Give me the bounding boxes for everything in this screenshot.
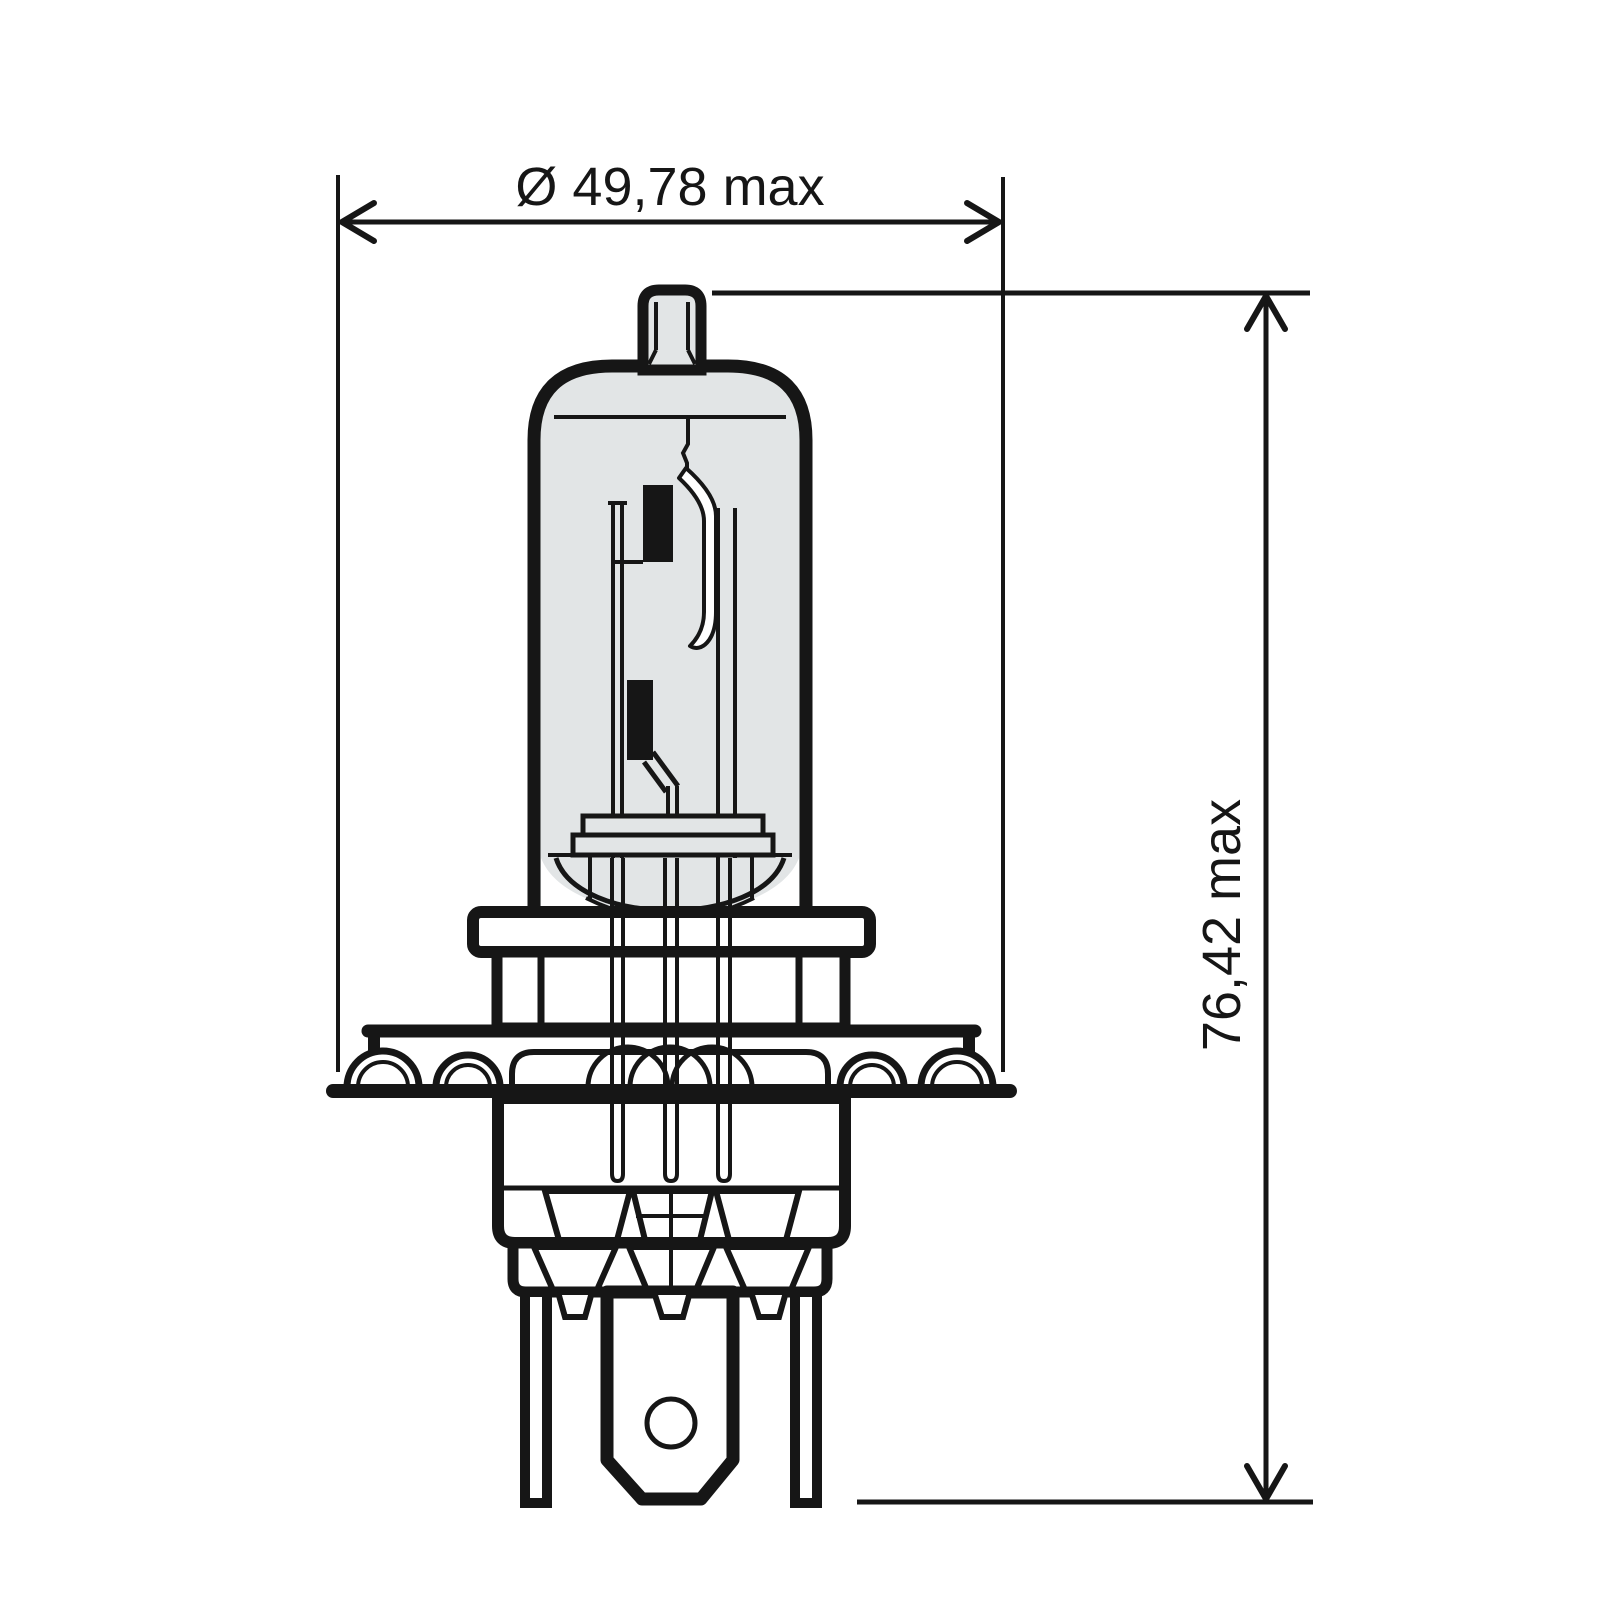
flange-cup [347, 1031, 993, 1088]
exhaust-tip [643, 290, 701, 370]
bulb-technical-drawing-page: Ø 49,78 max 76,42 max [0, 0, 1600, 1600]
base-tab-center [654, 1292, 690, 1317]
base-tab-right [751, 1292, 786, 1317]
platform-slab-bottom [573, 835, 773, 855]
terminal-center-spade [607, 1292, 733, 1499]
pinch-platform [548, 816, 792, 855]
collar-band [473, 912, 870, 952]
terminals [525, 1292, 817, 1503]
diameter-label: Ø 49,78 max [515, 157, 824, 217]
bulb [333, 290, 1010, 1503]
filament-block-upper [643, 485, 673, 562]
platform-slab-top [583, 816, 763, 835]
length-label: 76,42 max [1192, 799, 1252, 1051]
collar-skirt [497, 952, 845, 1028]
terminal-pin-left [525, 1292, 547, 1503]
bulb-technical-drawing: Ø 49,78 max 76,42 max [0, 0, 1600, 1600]
filament-block-lower [627, 680, 653, 760]
terminal-pin-right [795, 1292, 817, 1503]
base-tab-left [558, 1292, 592, 1317]
